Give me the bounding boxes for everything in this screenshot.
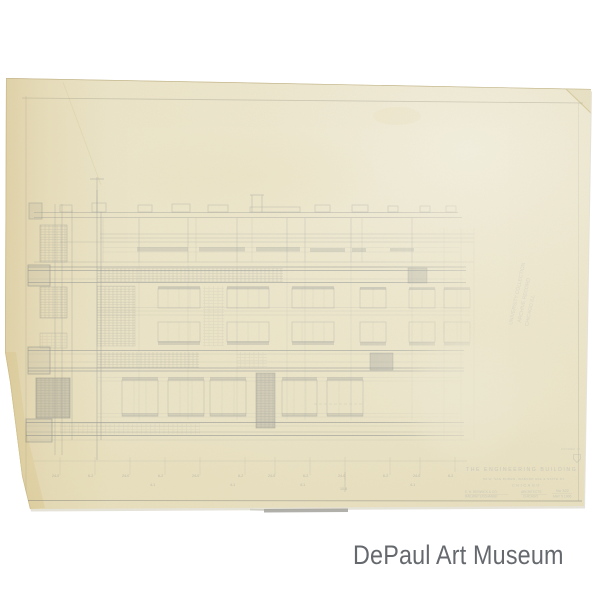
svg-text:10-6: 10-6 [340, 487, 347, 491]
svg-text:53 W. VAN BUREN, WABASH AVE &: 53 W. VAN BUREN, WABASH AVE & STATE ST. [483, 477, 565, 481]
svg-text:6-2: 6-2 [383, 474, 388, 478]
svg-text:4-1: 4-1 [300, 483, 305, 487]
svg-text:THE ENGINEERING BUILDING: THE ENGINEERING BUILDING [466, 467, 577, 473]
svg-text:4-1: 4-1 [230, 483, 235, 487]
svg-text:6-2: 6-2 [88, 474, 93, 478]
svg-text:E. H. RENWICK & CO.: E. H. RENWICK & CO. [465, 490, 498, 494]
svg-text:24-0: 24-0 [413, 474, 420, 478]
svg-text:24-0: 24-0 [338, 474, 345, 478]
svg-text:4-1: 4-1 [410, 483, 415, 487]
svg-text:DRAWER 17: DRAWER 17 [561, 447, 581, 451]
svg-text:24-0: 24-0 [52, 474, 59, 478]
svg-text:6-2: 6-2 [238, 474, 243, 478]
svg-text:24-0: 24-0 [268, 474, 275, 478]
svg-text:24-0: 24-0 [122, 474, 129, 478]
svg-text:24-0: 24-0 [192, 474, 199, 478]
svg-text:6-2: 6-2 [448, 474, 453, 478]
svg-text:CHICAGO: CHICAGO [512, 484, 541, 488]
svg-text:6-2: 6-2 [303, 474, 308, 478]
svg-text:No 322: No 322 [556, 488, 570, 493]
svg-text:MAY 5 1906: MAY 5 1906 [553, 495, 571, 499]
svg-text:4-1: 4-1 [150, 483, 155, 487]
svg-text:RAILWAY EXCHANGE: RAILWAY EXCHANGE [465, 495, 497, 499]
svg-text:6-2: 6-2 [158, 474, 163, 478]
svg-text:ARCHITECTS: ARCHITECTS [521, 490, 541, 494]
svg-text:CHICAGO: CHICAGO [523, 495, 538, 499]
